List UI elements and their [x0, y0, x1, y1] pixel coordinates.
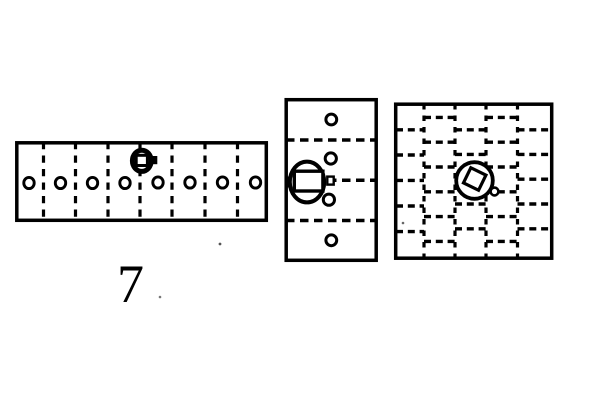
svg-text:7: 7 — [117, 254, 144, 314]
